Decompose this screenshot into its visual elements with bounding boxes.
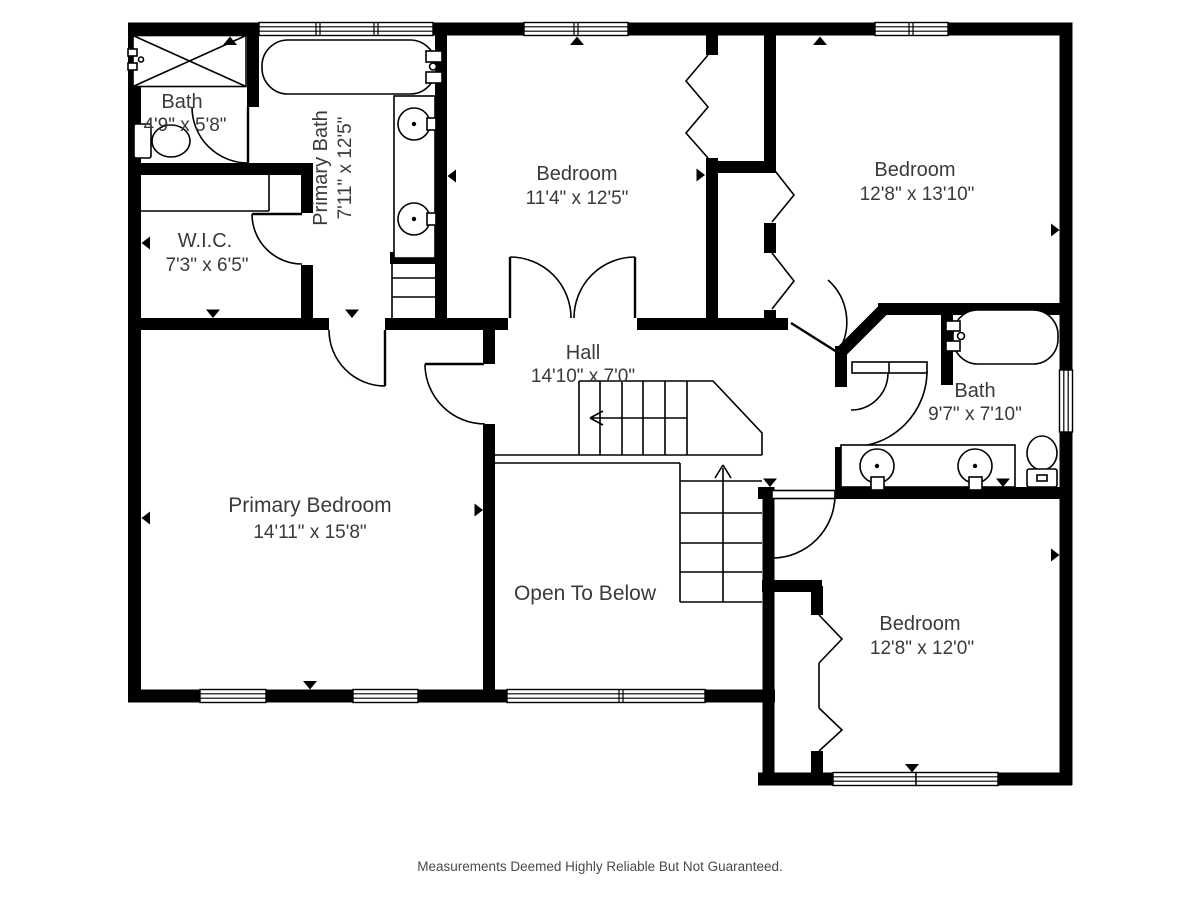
wic-door: [252, 214, 302, 264]
primary-bath-door: [329, 330, 385, 386]
bedroom-front-closet-bifold: [686, 55, 708, 158]
floor-plan: Bath 4'9" x 5'8" Primary Bath 7'11" x 12…: [0, 0, 1200, 900]
room-dims-bath-right: 9'7" x 7'10": [928, 404, 1022, 425]
bedroom-right-door: [791, 280, 847, 352]
room-label-wic: W.I.C.: [178, 230, 232, 252]
bath-right-door: [851, 362, 927, 447]
floor-plan-page: Bath 4'9" x 5'8" Primary Bath 7'11" x 12…: [0, 0, 1200, 900]
double-sink-vanity-right: [841, 445, 1015, 490]
room-label-bedroom-bottom: Bedroom: [879, 613, 960, 635]
linen-shelves: [392, 264, 438, 318]
room-label-hall: Hall: [566, 342, 600, 364]
wic-shelf: [134, 175, 269, 211]
room-label-bedroom-right: Bedroom: [874, 159, 955, 181]
bedroom-bottom-closet-bifold: [819, 615, 842, 751]
room-label-bath-right: Bath: [954, 380, 995, 402]
footer-disclaimer: Measurements Deemed Highly Reliable But …: [417, 859, 782, 874]
room-label-bath-small: Bath: [161, 91, 202, 113]
room-label-open-below: Open To Below: [514, 582, 657, 605]
staircase: [489, 381, 762, 602]
bedroom-front-double-door: [510, 257, 635, 318]
toilet-right: [1027, 436, 1057, 487]
bathtub-right: [946, 310, 1058, 364]
double-sink-vanity: [394, 96, 436, 258]
room-label-primary-bath: Primary Bath: [310, 110, 332, 226]
room-dims-hall: 14'10" x 7'0": [531, 366, 635, 387]
bathtub: [262, 40, 442, 94]
room-dims-bedroom-front: 11'4" x 12'5": [526, 188, 629, 209]
room-dims-bedroom-right: 12'8" x 13'10": [860, 184, 975, 205]
hall-primary-bedroom-door: [425, 364, 485, 424]
room-dims-primary-bedroom: 14'11" x 15'8": [253, 522, 366, 543]
bedroom-bottom-door: [772, 491, 835, 559]
room-dims-bedroom-bottom: 12'8" x 12'0": [870, 638, 974, 659]
room-dims-primary-bath: 7'11" x 12'5": [335, 117, 356, 220]
room-dims-wic: 7'3" x 6'5": [165, 255, 248, 276]
room-label-bedroom-front: Bedroom: [536, 163, 617, 185]
room-dims-bath-small: 4'9" x 5'8": [143, 115, 226, 136]
room-label-primary-bedroom: Primary Bedroom: [228, 494, 391, 517]
room-labels: Bath 4'9" x 5'8" Primary Bath 7'11" x 12…: [143, 91, 1021, 659]
interior-walls: [128, 29, 1066, 785]
